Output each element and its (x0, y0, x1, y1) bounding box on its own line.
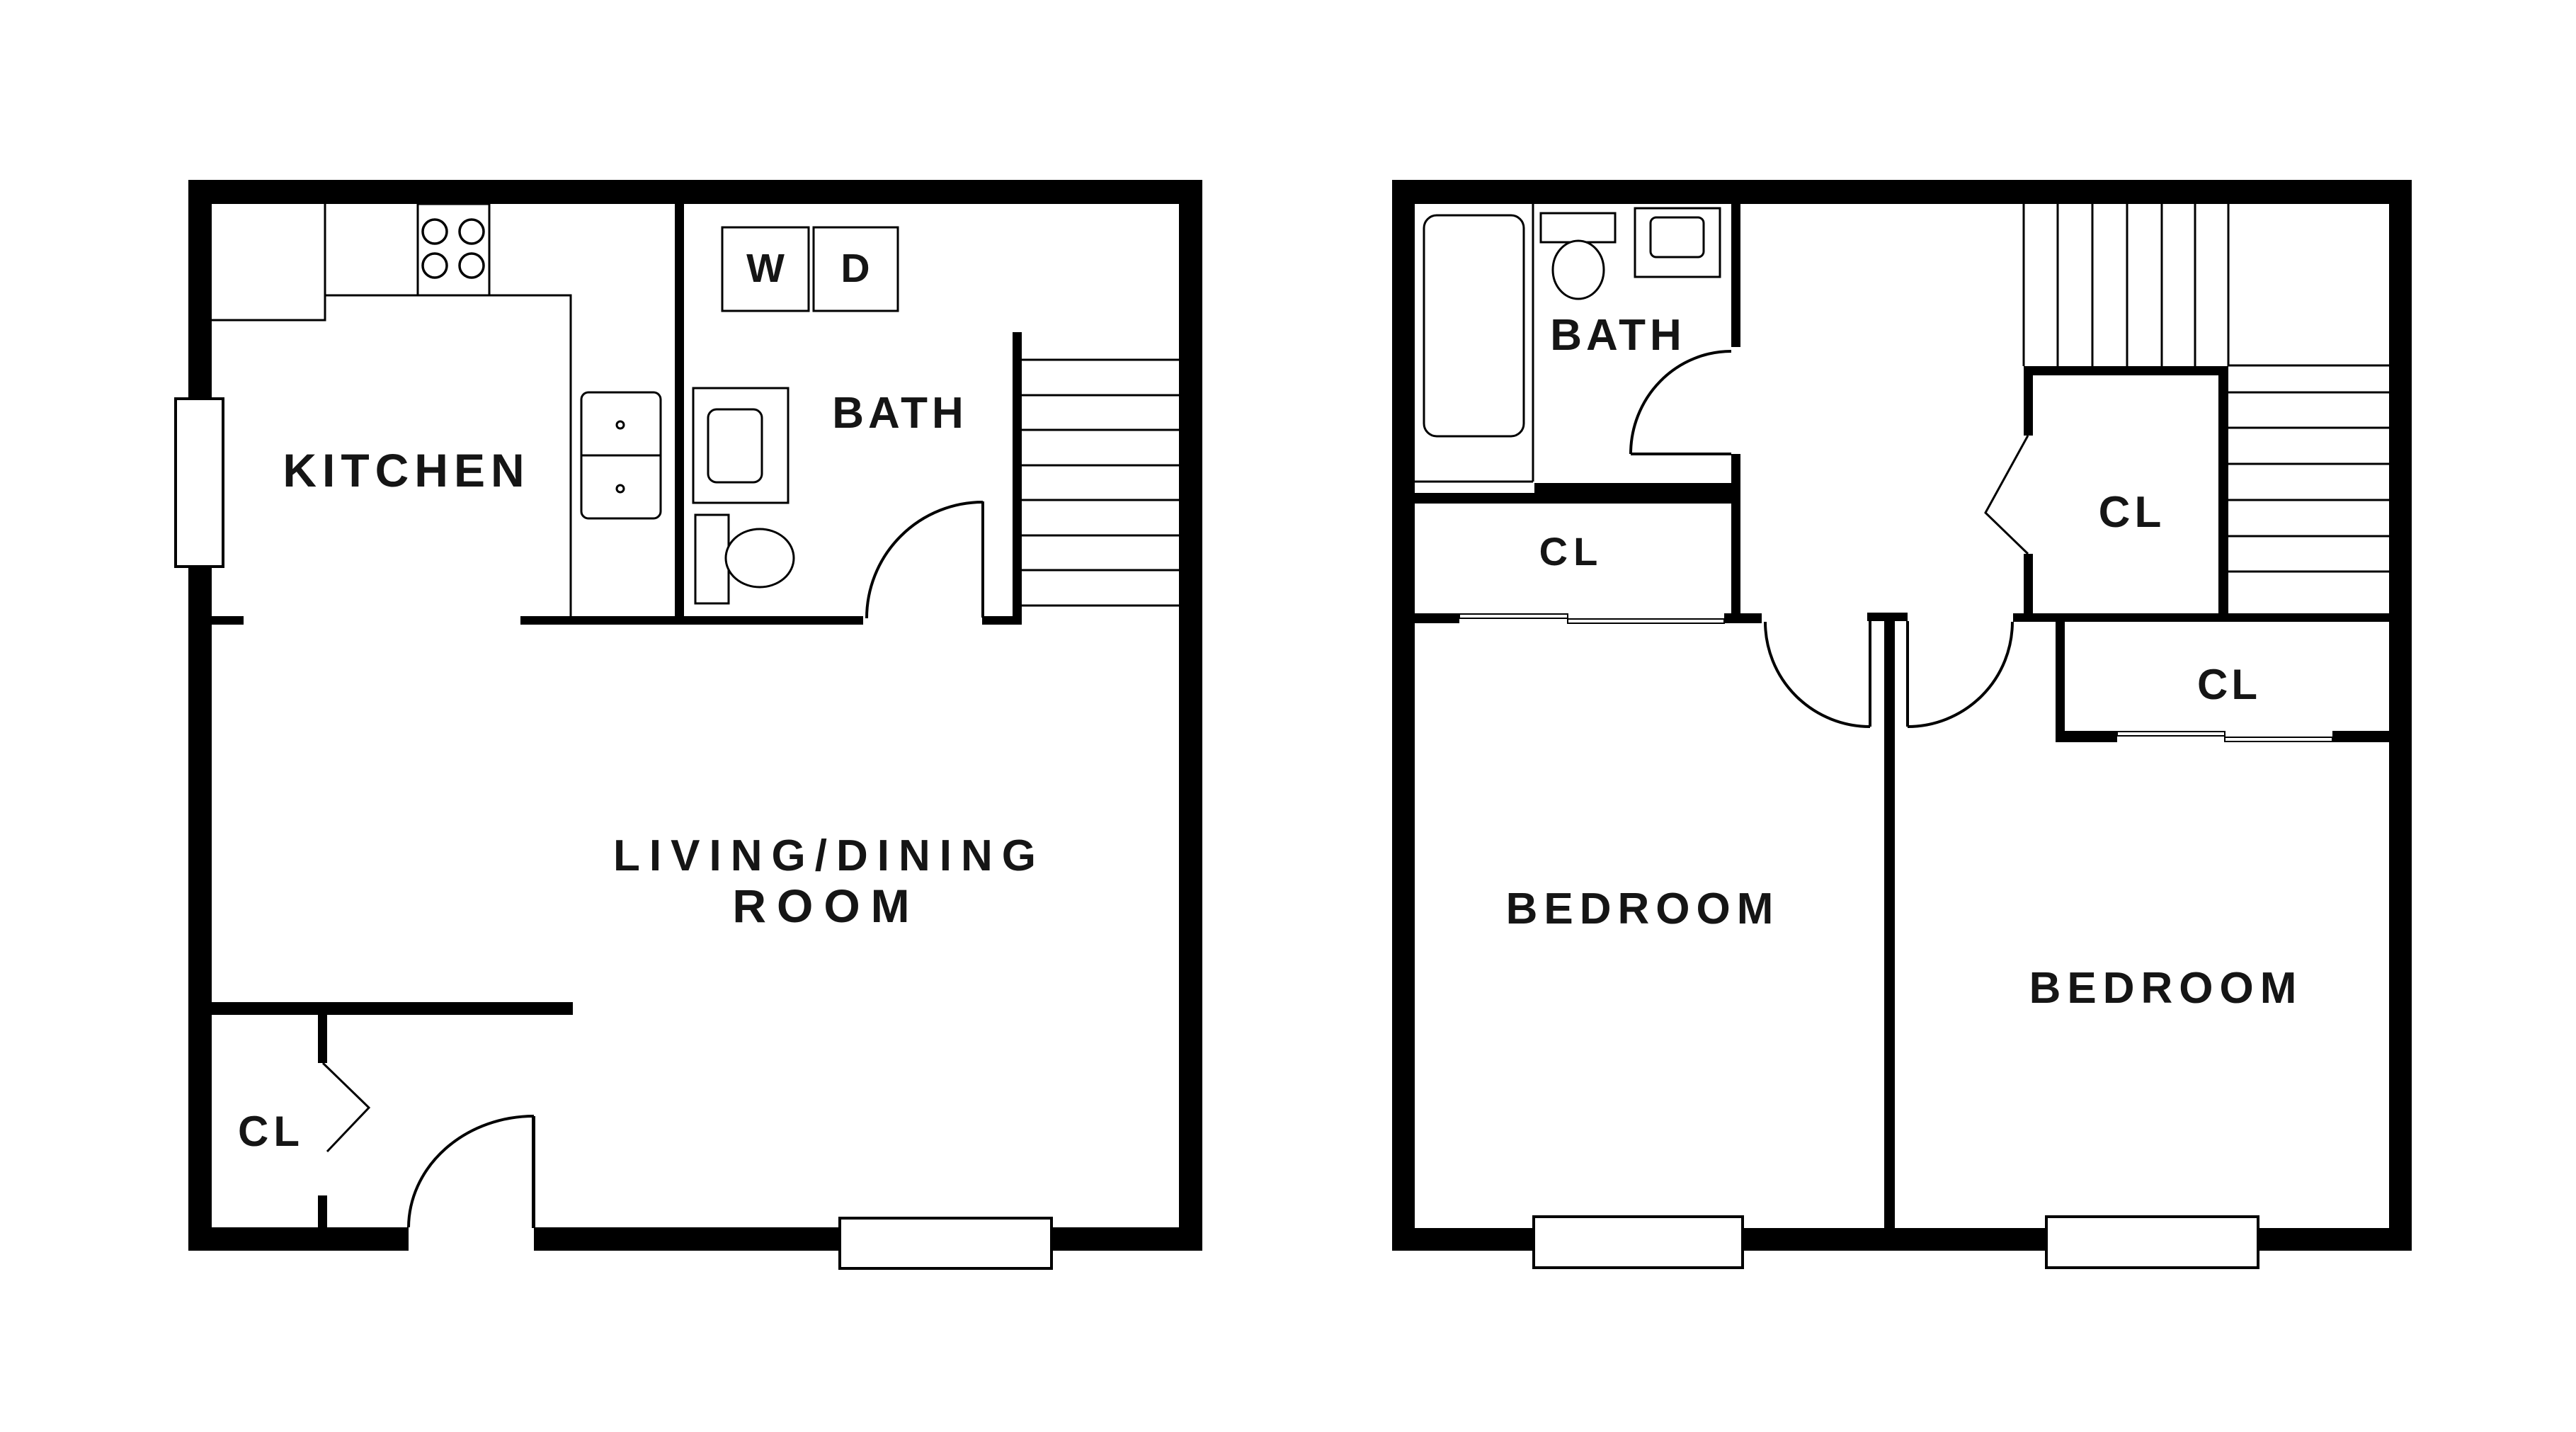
svg-text:CL: CL (238, 1108, 304, 1155)
svg-text:CL: CL (2099, 488, 2166, 537)
svg-text:BEDROOM: BEDROOM (2029, 964, 2303, 1013)
svg-text:BEDROOM: BEDROOM (1506, 885, 1780, 933)
svg-text:D: D (840, 246, 870, 291)
svg-text:KITCHEN: KITCHEN (283, 444, 530, 496)
svg-text:BATH: BATH (832, 389, 968, 438)
svg-text:CL: CL (1539, 529, 1604, 574)
svg-text:CL: CL (2197, 661, 2261, 708)
svg-text:BATH: BATH (1550, 311, 1686, 360)
svg-text:LIVING/DINING: LIVING/DINING (613, 831, 1045, 880)
svg-text:ROOM: ROOM (732, 880, 920, 932)
svg-text:W: W (746, 246, 785, 291)
